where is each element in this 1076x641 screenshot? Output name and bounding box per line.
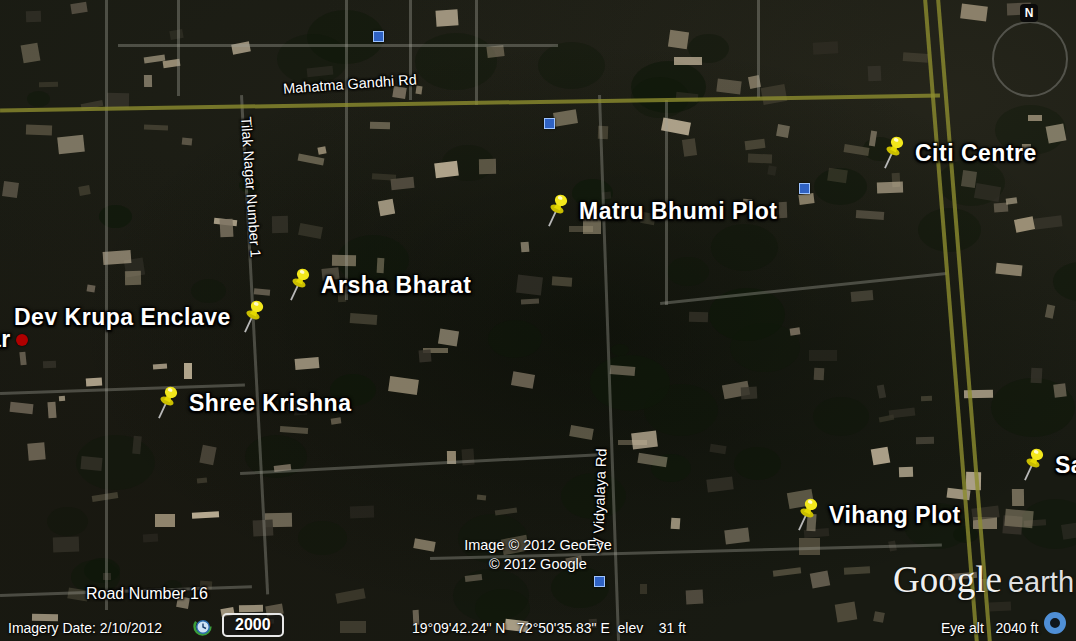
vegetation-blob xyxy=(415,33,497,90)
building-block xyxy=(810,570,831,588)
building-block xyxy=(790,327,801,335)
building-block xyxy=(220,219,234,238)
building-block xyxy=(199,445,216,465)
building-block xyxy=(995,263,1022,277)
building-block xyxy=(423,348,448,353)
pushpin-icon[interactable] xyxy=(282,266,316,304)
building-block xyxy=(461,449,474,466)
building-block xyxy=(350,506,374,519)
building-block xyxy=(776,124,790,138)
building-block xyxy=(125,271,141,285)
placemark-arsha-bharat[interactable]: Arsha Bharat xyxy=(282,266,471,304)
building-block xyxy=(239,605,263,612)
building-block xyxy=(637,453,667,467)
building-block xyxy=(87,284,96,292)
building-block xyxy=(295,357,320,370)
building-block xyxy=(332,255,356,266)
building-block xyxy=(618,440,647,445)
vegetation-blob xyxy=(76,435,155,490)
vegetation-blob xyxy=(611,344,629,356)
building-block xyxy=(254,288,270,295)
pushpin-icon[interactable] xyxy=(236,298,270,336)
building-block xyxy=(350,313,378,325)
building-block xyxy=(610,365,636,376)
vegetation-blob xyxy=(631,61,706,113)
building-block xyxy=(197,477,207,483)
vegetation-blob xyxy=(730,323,800,372)
google-earth-viewport[interactable]: Mahatma Gandhi Rd Tilak Nagar Number 1 V… xyxy=(0,0,1076,641)
building-block xyxy=(706,476,733,492)
building-block xyxy=(1046,123,1067,143)
building-block xyxy=(2,181,19,198)
photo-icon[interactable] xyxy=(594,576,605,587)
pushpin-icon[interactable] xyxy=(540,192,574,230)
building-block xyxy=(155,514,175,527)
building-block xyxy=(486,45,504,58)
logo-earth-text: earth xyxy=(1008,566,1074,599)
building-block xyxy=(214,218,238,226)
photo-icon[interactable] xyxy=(799,183,810,194)
logo-google-text: Google xyxy=(893,558,1002,601)
building-block xyxy=(553,109,578,126)
building-block xyxy=(70,2,87,14)
building-block xyxy=(39,82,58,87)
vegetation-blob xyxy=(590,355,670,411)
building-block xyxy=(144,75,152,87)
placemark-label[interactable]: Arsha Bharat xyxy=(321,272,471,299)
vegetation-blob xyxy=(1053,262,1076,301)
placemark-sa-partial[interactable]: Sa xyxy=(1016,446,1076,484)
vegetation-blob xyxy=(651,454,691,482)
building-block xyxy=(340,621,366,633)
building-block xyxy=(994,203,1009,213)
building-block xyxy=(124,258,145,278)
building-block xyxy=(434,161,459,179)
vegetation-blob xyxy=(644,384,718,436)
building-block xyxy=(1006,197,1018,204)
building-block xyxy=(779,202,788,218)
building-block xyxy=(80,456,102,471)
building-block xyxy=(26,125,52,136)
coordinates-text: 19°09'42.24" N 72°50'35.83" E elev 31 ft xyxy=(412,620,686,636)
building-block xyxy=(916,437,934,444)
building-block xyxy=(182,137,193,145)
vegetation-blob xyxy=(667,257,709,286)
building-block xyxy=(974,183,1001,202)
building-block xyxy=(973,517,997,529)
placemark-matru-bhumi-plot[interactable]: Matru Bhumi Plot xyxy=(540,192,777,230)
time-slider-year-box[interactable]: 2000 xyxy=(222,613,284,637)
building-block xyxy=(388,376,419,395)
building-block xyxy=(307,66,334,78)
building-block xyxy=(798,193,814,205)
building-block xyxy=(521,242,530,253)
vegetation-blob xyxy=(99,205,132,228)
building-block xyxy=(964,390,993,399)
building-block xyxy=(231,41,251,54)
building-block xyxy=(961,170,977,188)
building-block xyxy=(184,363,192,379)
building-block xyxy=(689,312,708,323)
placemark-ar-partial[interactable]: ar xyxy=(0,326,28,353)
compass-north-button[interactable]: N xyxy=(1020,4,1038,22)
vegetation-blob xyxy=(918,208,981,252)
placemark-label[interactable]: Sa xyxy=(1055,452,1076,479)
eye-altitude-text: Eye alt 2040 ft xyxy=(941,620,1038,636)
building-block xyxy=(661,117,691,135)
building-block xyxy=(78,185,90,196)
placemark-label[interactable]: Vihang Plot xyxy=(829,502,961,529)
vegetation-blob xyxy=(551,567,609,608)
pushpin-icon[interactable] xyxy=(876,134,910,172)
building-block xyxy=(873,611,885,623)
vegetation-blob xyxy=(47,507,88,536)
building-block xyxy=(43,361,56,369)
placemark-label[interactable]: Citi Centre xyxy=(915,140,1037,167)
vegetation-blob xyxy=(709,288,785,341)
building-block xyxy=(298,154,325,166)
placemark-vihang-plot[interactable]: Vihang Plot xyxy=(790,496,961,534)
building-block xyxy=(335,588,365,603)
building-block xyxy=(971,505,999,520)
road-label-road-number-16: Road Number 16 xyxy=(86,585,208,603)
building-block xyxy=(144,125,168,131)
building-block xyxy=(103,573,111,580)
building-block xyxy=(10,402,34,414)
vegetation-blob xyxy=(814,168,867,205)
building-block xyxy=(767,165,776,175)
building-block xyxy=(813,41,839,54)
building-block xyxy=(686,590,704,605)
building-block xyxy=(827,168,848,184)
building-block xyxy=(265,513,292,527)
building-block xyxy=(272,216,288,233)
building-block xyxy=(26,11,41,23)
building-block xyxy=(516,275,543,296)
vegetation-blob xyxy=(991,378,1075,437)
building-block xyxy=(709,444,726,454)
placemark-label[interactable]: Matru Bhumi Plot xyxy=(579,198,777,225)
building-block xyxy=(631,431,658,450)
building-block xyxy=(856,210,884,220)
placemark-dev-krupa-enclave[interactable]: Dev Krupa Enclave xyxy=(14,298,270,336)
vegetation-blob xyxy=(631,77,689,118)
vegetation-blob xyxy=(488,320,542,358)
building-block xyxy=(511,371,535,389)
building-block xyxy=(447,451,456,464)
vegetation-blob xyxy=(442,145,494,181)
building-block xyxy=(47,402,56,419)
vegetation-blob xyxy=(813,397,869,436)
building-block xyxy=(477,495,486,501)
building-block xyxy=(814,368,825,381)
building-block xyxy=(741,387,758,400)
building-block xyxy=(1014,216,1035,232)
building-block xyxy=(372,173,396,181)
building-block xyxy=(682,138,697,157)
building-block xyxy=(668,30,689,49)
building-block xyxy=(435,9,458,26)
building-block xyxy=(761,84,788,105)
poi-red-dot-icon[interactable] xyxy=(16,334,28,346)
vegetation-blob xyxy=(538,42,605,89)
vegetation-blob xyxy=(245,435,307,478)
building-block xyxy=(521,299,539,305)
building-block xyxy=(889,407,916,418)
building-block xyxy=(748,75,761,89)
building-block xyxy=(1045,304,1055,318)
pushpin-icon[interactable] xyxy=(1016,446,1050,484)
vegetation-blob xyxy=(734,447,781,480)
building-block xyxy=(163,59,181,69)
building-block xyxy=(132,436,142,455)
building-block xyxy=(844,144,870,156)
building-block xyxy=(378,199,395,216)
building-block xyxy=(92,492,119,502)
placemark-citi-centre[interactable]: Citi Centre xyxy=(876,134,1037,172)
building-block xyxy=(748,154,772,164)
historical-imagery-clock-icon[interactable] xyxy=(193,617,212,636)
placemark-label[interactable]: Shree Krishna xyxy=(189,390,351,417)
building-block xyxy=(851,290,874,302)
building-block xyxy=(81,100,104,110)
building-block xyxy=(899,467,913,477)
building-block xyxy=(59,396,65,401)
placemark-shree-krishna[interactable]: Shree Krishna xyxy=(150,384,351,422)
photo-icon[interactable] xyxy=(373,31,384,42)
placemark-label[interactable]: ar xyxy=(0,326,11,353)
building-block xyxy=(640,584,647,594)
building-block xyxy=(1033,215,1062,229)
building-block xyxy=(879,415,895,423)
building-block xyxy=(465,574,483,582)
building-block xyxy=(989,601,1011,611)
building-block xyxy=(903,52,929,63)
building-block xyxy=(892,173,901,187)
building-block xyxy=(1002,515,1022,534)
building-block xyxy=(1024,519,1046,527)
building-block xyxy=(1053,383,1066,397)
building-block xyxy=(960,3,988,21)
building-block xyxy=(676,92,699,102)
building-block xyxy=(390,177,414,190)
building-block xyxy=(19,352,26,366)
building-block xyxy=(103,250,132,265)
vegetation-blob xyxy=(453,569,529,622)
pushpin-icon[interactable] xyxy=(790,496,824,534)
building-block xyxy=(671,518,681,530)
building-block xyxy=(86,377,103,386)
building-block xyxy=(674,57,702,65)
building-block xyxy=(27,442,45,460)
streaming-indicator-icon xyxy=(1044,612,1066,634)
building-block xyxy=(569,425,594,440)
placemark-label[interactable]: Dev Krupa Enclave xyxy=(14,304,231,331)
building-block xyxy=(495,507,517,515)
building-block xyxy=(253,519,274,536)
building-block xyxy=(169,29,183,40)
building-block xyxy=(1028,115,1042,121)
building-block xyxy=(835,602,858,623)
building-block xyxy=(921,396,932,401)
building-block xyxy=(966,472,981,490)
building-block xyxy=(298,223,323,239)
vegetation-blob xyxy=(711,224,778,271)
pushpin-icon[interactable] xyxy=(150,384,184,422)
building-block xyxy=(274,464,292,472)
building-block xyxy=(809,350,837,361)
building-block xyxy=(280,426,308,434)
building-block xyxy=(1031,368,1043,384)
building-block xyxy=(868,66,882,82)
building-block xyxy=(722,381,750,400)
building-block xyxy=(317,146,326,154)
building-block xyxy=(438,329,459,347)
vegetation-blob xyxy=(688,34,729,63)
building-block xyxy=(716,79,741,95)
building-block xyxy=(479,159,496,174)
photo-icon[interactable] xyxy=(544,118,555,129)
imagery-copyright: Image © 2012 GeoEye xyxy=(0,537,1076,553)
building-block xyxy=(418,349,431,362)
imagery-date-text: Imagery Date: 2/10/2012 xyxy=(8,620,162,636)
building-block xyxy=(552,276,573,286)
building-block xyxy=(877,182,903,194)
building-block xyxy=(107,93,129,108)
building-block xyxy=(144,55,166,64)
building-block xyxy=(745,139,766,150)
building-block xyxy=(370,122,390,129)
building-block xyxy=(1004,509,1033,528)
building-block xyxy=(598,126,608,139)
building-block xyxy=(153,364,167,370)
building-block xyxy=(1012,489,1024,506)
building-block xyxy=(192,511,219,518)
building-block xyxy=(57,135,85,155)
building-block xyxy=(871,447,891,466)
google-earth-logo: Google earth xyxy=(893,558,1074,601)
vegetation-blob xyxy=(27,91,50,107)
building-block xyxy=(877,384,886,398)
building-block xyxy=(21,43,41,64)
